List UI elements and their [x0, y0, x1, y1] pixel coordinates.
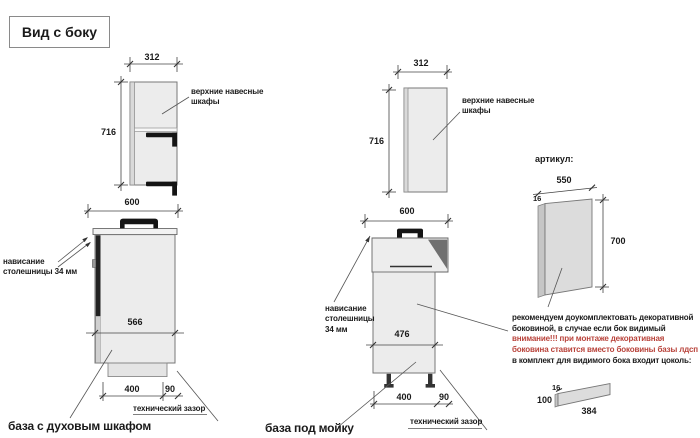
- sink-upper-cabinet: [404, 88, 447, 192]
- lower-front-strip: [96, 316, 101, 362]
- oven-door-profile: [96, 235, 101, 316]
- caption-sink-base: база под мойку: [265, 421, 354, 435]
- door-edge: [130, 82, 135, 185]
- cabinet-body: [95, 235, 175, 363]
- cabinet-body: [373, 272, 435, 373]
- dim-sink-base-top-width: 600: [399, 206, 414, 216]
- door-edge: [404, 88, 408, 192]
- cabinet-body: [404, 88, 447, 192]
- dim-panel-height: 700: [610, 236, 625, 246]
- dim-oven-gap-width: 90: [165, 384, 175, 394]
- oven-upper-cabinet: [130, 82, 177, 196]
- note-oven-gap: технический зазор: [133, 404, 205, 414]
- dim-sink-gap-width: 90: [439, 392, 449, 402]
- note-oven-upper-cabinets: верхние навесные шкафы: [191, 87, 263, 108]
- dim-panel-width: 550: [556, 175, 571, 185]
- caption-oven-base: база с духовым шкафом: [8, 419, 151, 433]
- dim-oven-upper-width: 312: [144, 52, 159, 62]
- shelf-line: [135, 128, 178, 132]
- note-sink-upper-cabinets: верхние навесные шкафы: [462, 96, 534, 117]
- note-sink-overhang: нависание столешницы 34 мм: [325, 304, 375, 335]
- oven-top-handle-icon: [120, 219, 158, 229]
- dim-plinth-thickness: 16: [552, 383, 560, 392]
- side-view-drawing: Вид с боку 312 716 верхние навесные шкаф…: [0, 0, 700, 438]
- plinth: [108, 363, 167, 377]
- drawing-layer: [0, 0, 700, 438]
- dim-sink-plinth-width: 400: [396, 392, 411, 402]
- page-title: Вид с боку: [9, 16, 110, 48]
- dim-plinth-height: 100: [530, 395, 552, 405]
- dim-sink-inner-depth: 476: [394, 329, 409, 339]
- dim-oven-upper-height: 716: [98, 127, 116, 137]
- dim-oven-inner-depth: 566: [127, 317, 142, 327]
- warning-line: внимание!!! при монтаже декоративная: [512, 334, 698, 345]
- page-title-text: Вид с боку: [22, 24, 97, 40]
- dim-oven-base-top-width: 600: [124, 197, 139, 207]
- sink-base-cabinet: [372, 229, 448, 388]
- countertop: [93, 229, 177, 235]
- dim-oven-plinth-width: 400: [124, 384, 139, 394]
- note-sink-gap: технический зазор: [410, 417, 482, 427]
- adjustable-legs: [384, 374, 435, 388]
- decorative-side-panel: [538, 199, 592, 297]
- panel-note-block: рекомендуем доукомплектовать декоративно…: [512, 313, 698, 367]
- panel-heading: артикул:: [535, 154, 573, 164]
- dim-sink-upper-width: 312: [413, 58, 428, 68]
- note-oven-overhang: нависание столешницы 34 мм: [3, 257, 77, 277]
- dim-sink-upper-height: 716: [366, 136, 384, 146]
- warning-line: боковина ставится вместо боковины базы л…: [512, 345, 698, 356]
- plinth-panel: [555, 384, 610, 407]
- oven-handle-nub: [92, 260, 95, 268]
- dim-panel-thickness: 16: [533, 194, 541, 203]
- oven-base-cabinet: [92, 219, 177, 377]
- dim-plinth-length: 384: [581, 406, 596, 416]
